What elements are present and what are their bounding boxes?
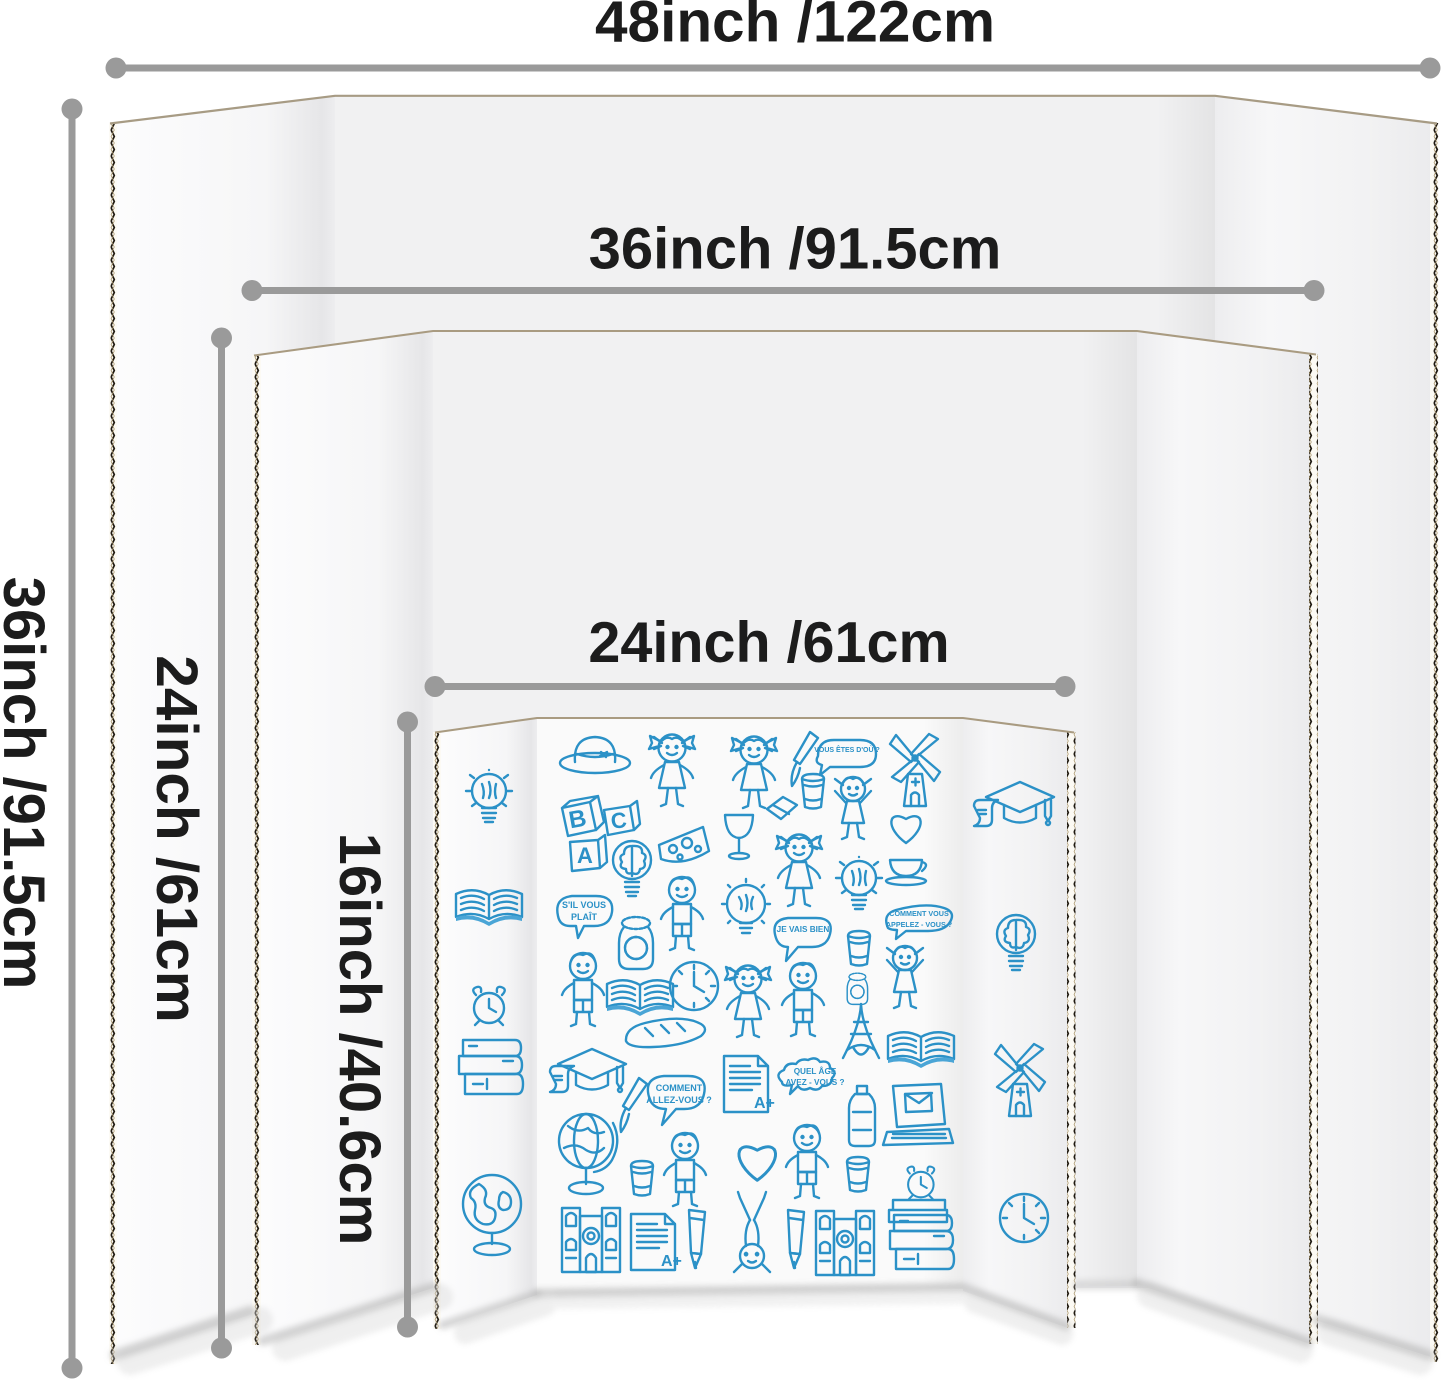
svg-text:48inch /122cm: 48inch /122cm — [595, 0, 995, 55]
svg-text:AVEZ - VOUS ?: AVEZ - VOUS ? — [786, 1078, 845, 1087]
svg-text:APPELEZ - VOUS ?: APPELEZ - VOUS ? — [886, 920, 952, 929]
svg-text:ALLEZ-VOUS ?: ALLEZ-VOUS ? — [646, 1095, 712, 1105]
svg-text:24inch /61cm: 24inch /61cm — [588, 611, 949, 675]
svg-text:36inch /91.5cm: 36inch /91.5cm — [0, 577, 56, 990]
svg-text:16inch /40.6cm: 16inch /40.6cm — [327, 833, 392, 1246]
svg-text:QUEL ÂGE: QUEL ÂGE — [794, 1065, 837, 1076]
svg-text:36inch /91.5cm: 36inch /91.5cm — [589, 217, 1002, 282]
svg-text:S'IL VOUS: S'IL VOUS — [562, 900, 606, 910]
svg-text:JE VAIS BIEN: JE VAIS BIEN — [777, 925, 830, 934]
svg-text:24inch /61cm: 24inch /61cm — [144, 655, 209, 1022]
svg-text:PLAÎT: PLAÎT — [571, 911, 598, 922]
svg-text:VOUS ÊTES D'OÙ ?: VOUS ÊTES D'OÙ ? — [814, 745, 879, 754]
svg-text:COMMENT: COMMENT — [656, 1083, 703, 1093]
svg-text:COMMENT VOUS: COMMENT VOUS — [889, 909, 949, 918]
